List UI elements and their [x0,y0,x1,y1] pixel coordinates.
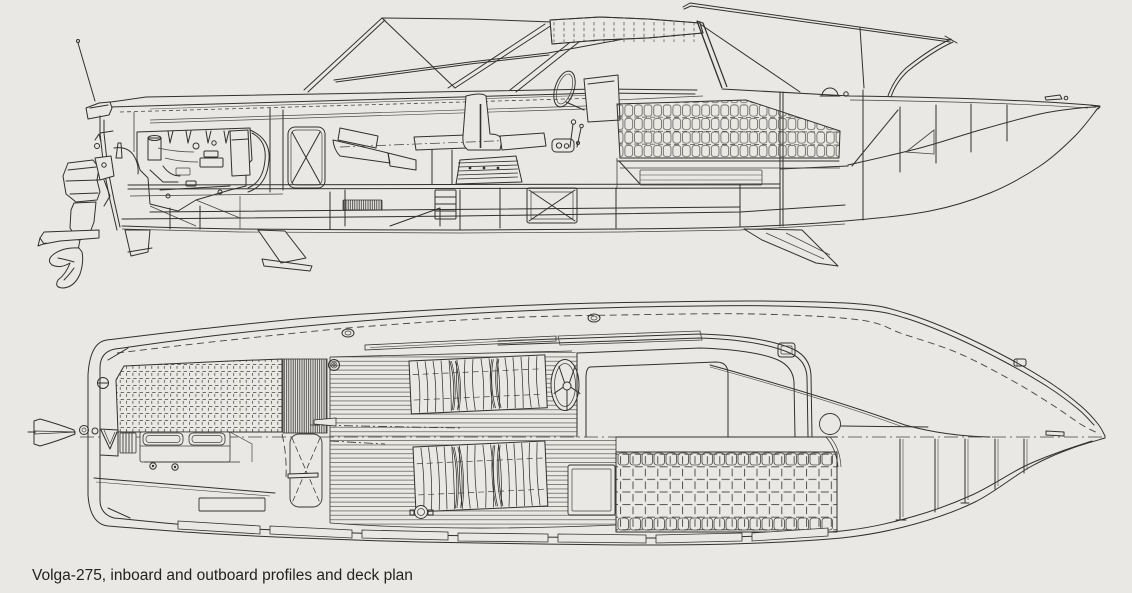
svg-text:Volga-275, inboard and outboar: Volga-275, inboard and outboard profiles… [32,567,413,584]
